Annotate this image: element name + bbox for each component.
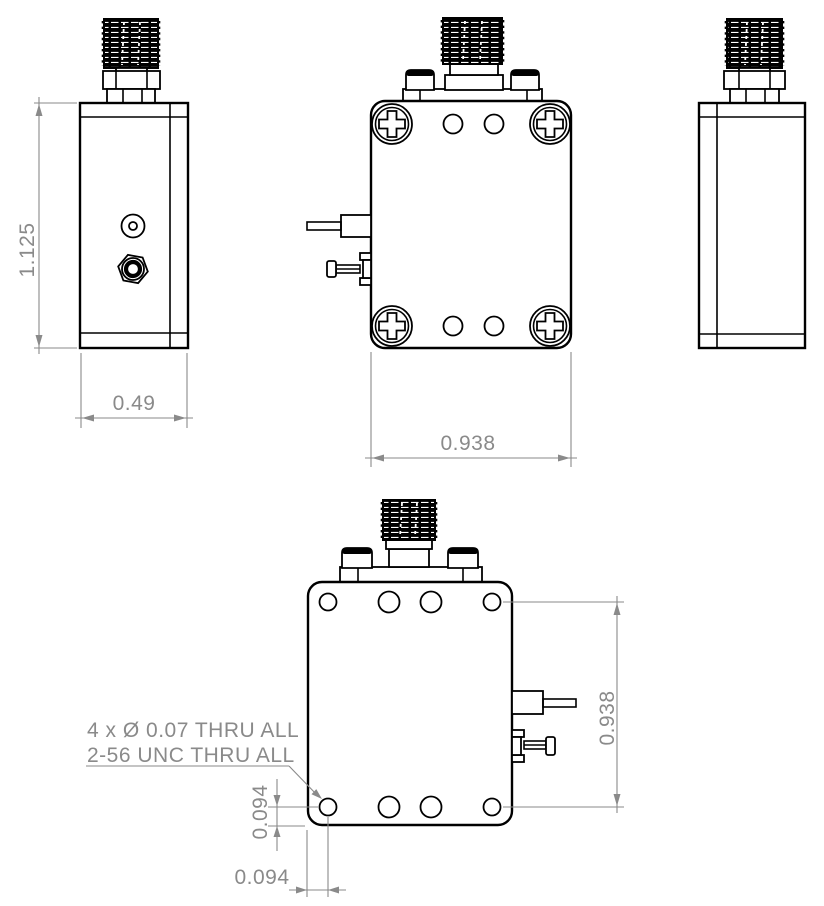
thru-hole <box>444 317 463 336</box>
hole-note-line2: 2-56 UNC THRU ALL <box>87 744 295 767</box>
back-view <box>308 500 576 825</box>
housing-body <box>699 103 805 348</box>
dim-text-back-height: 0.938 <box>596 690 619 745</box>
engineering-drawing: 1.125 0.49 <box>0 0 824 906</box>
corner-tapped-hole <box>484 799 501 816</box>
front-view <box>307 18 571 348</box>
dimension-front-width-0938: 0.938 <box>365 352 577 467</box>
hole-note: 4 x Ø 0.07 THRU ALL 2-56 UNC THRU ALL <box>86 719 322 799</box>
cover-screw-icon <box>372 104 412 144</box>
right-side-view <box>699 19 805 348</box>
hole-note-line1: 4 x Ø 0.07 THRU ALL <box>87 719 299 742</box>
thru-hole <box>485 317 504 336</box>
sma-connector-front-icon <box>403 18 542 101</box>
dim-text-width: 0.49 <box>113 392 156 415</box>
cover-screw-icon <box>372 306 412 346</box>
sma-connector-back-icon <box>340 500 482 582</box>
ground-screw-icon <box>327 253 371 285</box>
ground-screw-icon <box>512 730 555 762</box>
housing-back-face <box>308 582 512 825</box>
dim-text-hole-offset-horizontal: 0.094 <box>234 866 289 889</box>
corner-tapped-hole <box>320 594 337 611</box>
dim-text-height: 1.125 <box>16 222 39 277</box>
feedthru-pin-hole-icon <box>122 215 145 238</box>
dimension-width-049: 0.49 <box>75 353 193 428</box>
dc-feedthru-pin-icon <box>307 215 371 237</box>
dimension-height-1125: 1.125 <box>16 97 77 354</box>
left-side-view <box>80 19 188 348</box>
dim-text-front-width: 0.938 <box>440 432 495 455</box>
sma-connector-side-icon <box>724 19 785 103</box>
thru-hole <box>485 115 504 134</box>
dim-text-hole-offset-vertical: 0.094 <box>249 784 272 839</box>
thru-hole <box>379 797 400 818</box>
drawing-sheet: 1.125 0.49 <box>0 0 824 906</box>
thru-hole <box>421 592 442 613</box>
cover-screw-icon <box>530 306 570 346</box>
corner-tapped-hole <box>320 799 337 816</box>
thru-hole <box>379 592 400 613</box>
cover-screw-icon <box>530 104 570 144</box>
dc-feedthru-pin-icon <box>512 691 576 714</box>
thru-hole <box>444 115 463 134</box>
sma-connector-side-icon <box>103 19 160 103</box>
corner-tapped-hole <box>484 594 501 611</box>
thru-hole <box>421 797 442 818</box>
